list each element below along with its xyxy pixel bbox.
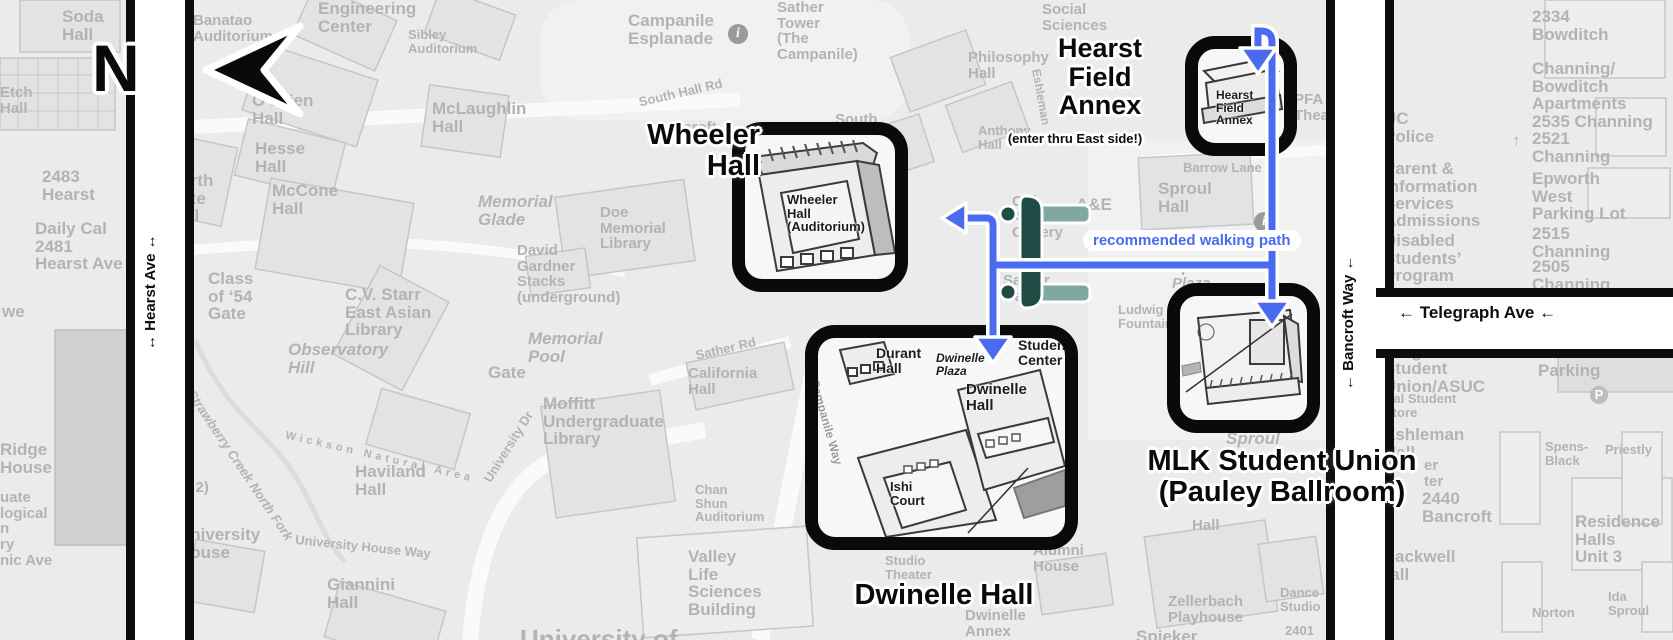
label-channing-bowditch: Channing/ Bowditch Apartments 2535 Chann…	[1532, 60, 1653, 131]
label-observatory-hill: Observatory Hill	[288, 341, 388, 376]
label-campanile-esplanade: Campanile Esplanade	[628, 12, 714, 47]
student-center-label: Student Center	[1018, 338, 1070, 367]
label-arrow-up: ↑	[1512, 132, 1521, 150]
info-icon: i	[1254, 212, 1274, 232]
north-letter: N	[92, 30, 140, 106]
hearst-annex-building-label: Hearst Field Annex	[1216, 89, 1253, 127]
label-daily-cal: Daily Cal 2481 Hearst Ave	[35, 220, 123, 273]
label-sibley: Sibley Auditorium	[408, 28, 477, 55]
label-etch-hall: Etch Hall	[0, 85, 33, 116]
label-chan-shun: Chan Shun Auditorium	[695, 483, 764, 524]
mlk-drawing	[1180, 296, 1307, 420]
label-2401: 2401	[1285, 624, 1314, 638]
label-2521-channing: 2521 Channing	[1532, 130, 1610, 165]
label-haviland: Haviland Hall	[355, 463, 426, 498]
walking-path-label: recommended walking path	[1083, 230, 1301, 251]
hearst-annex-subtitle: (enter thru East side!)	[965, 132, 1185, 146]
label-2334-bowditch: 2334 Bowditch	[1532, 8, 1609, 43]
label-norton: Norton	[1532, 606, 1575, 620]
label-ludwig-fountain: Ludwig Fountain	[1118, 303, 1173, 330]
label-dwinelle-annex: Dwinelle Annex	[965, 608, 1026, 639]
dwinelle-hall-inner-label: Dwinelle Hall	[966, 382, 1027, 414]
label-gate: Gate	[488, 364, 526, 382]
label-gardner-stacks: David Gardner Stacks (underground)	[517, 243, 620, 305]
hearst-annex-callout: Hearst Field Annex	[1185, 36, 1297, 156]
label-2515-channing: 2515 Channing	[1532, 225, 1610, 260]
label-cv-starr: C.V. Starr East Asian Library	[345, 286, 431, 339]
label-grad-partial: uate logical n ry	[0, 490, 48, 552]
label-admissions: Admissions	[1384, 212, 1480, 230]
label-priestly: Priestly	[1605, 443, 1652, 457]
label-we-partial: we	[2, 303, 25, 321]
label-ridge-house: Ridge House	[0, 441, 52, 476]
hearst-ave-label: ↔ Hearst Ave ↔	[142, 234, 159, 350]
label-mclaughlin: McLaughlin Hall	[432, 100, 526, 135]
label-residence-halls: Residence Halls Unit 3	[1575, 513, 1660, 566]
wheeler-hall-title: Wheeler Hall	[600, 120, 760, 181]
label-doe-library: Doe Memorial Library	[600, 205, 666, 252]
label-giannini: Giannini Hall	[327, 576, 395, 611]
bancroft-way-label: ← Bancroft Way ←	[1340, 256, 1357, 390]
label-memorial-pool: Memorial Pool	[528, 330, 603, 365]
label-hesse: Hesse Hall	[255, 140, 305, 175]
label-social-sciences: Social Sciences	[1042, 2, 1107, 33]
dwinelle-plaza-label: Dwinelle Plaza	[936, 352, 985, 377]
durant-hall-label: Durant Hall	[876, 346, 921, 375]
label-barrow-lane: Barrow Lane	[1183, 161, 1262, 175]
label-parent-info: Parent & Information Services	[1384, 160, 1478, 213]
label-ida-sproul: Ida Sproul	[1608, 590, 1649, 617]
label-dsp: Disabled Students’ Program	[1384, 232, 1461, 285]
info-icon: i	[728, 24, 748, 44]
label-sather-gate: Sather Gate	[1003, 273, 1050, 304]
telegraph-ave-road	[1376, 288, 1673, 358]
dwinelle-title: Dwinelle Hall	[814, 580, 1074, 611]
campus-map: Soda Hall Etch Hall Banatao Auditorium E…	[0, 0, 1673, 640]
label-zellerbach-playhouse: Zellerbach Playhouse	[1168, 594, 1243, 625]
label-2483-hearst: 2483 Hearst	[42, 168, 95, 203]
label-sather-tower: Sather Tower (The Campanile)	[777, 0, 858, 62]
label-dance-studio: Dance Studio	[1280, 586, 1320, 613]
label-class-of-54: Class of ‘54 Gate	[208, 270, 253, 323]
telegraph-ave-label: ← Telegraph Ave ←	[1398, 303, 1556, 323]
label-university-of: University of	[520, 626, 678, 640]
label-engineering-center: Engineering Center	[318, 0, 416, 35]
hearst-annex-title: Hearst Field Annex	[1025, 34, 1175, 120]
label-cal-student-store: Cal Student Store	[1384, 392, 1456, 419]
label-old-art-gallery: Old Art Gallery	[1012, 194, 1063, 241]
label-spens-black: Spens- Black	[1545, 440, 1588, 467]
mlk-callout	[1167, 283, 1320, 433]
label-moffitt: Moffitt Undergraduate Library	[543, 395, 664, 448]
label-studio-theater: Studio Theater	[885, 554, 932, 581]
label-epworth: Epworth West Parking Lot	[1532, 170, 1626, 223]
parking-icon: P	[1590, 386, 1608, 404]
label-scenic-ave: nic Ave	[0, 553, 52, 569]
dwinelle-hall-callout: Durant Hall Dwinelle Plaza Dwinelle Hall…	[805, 325, 1078, 550]
label-ae: A&E	[1076, 196, 1112, 214]
label-mccone: McCone Hall	[272, 182, 338, 217]
mlk-title: MLK Student Union (Pauley Ballroom)	[1092, 446, 1472, 507]
label-vlsb: Valley Life Sciences Building	[688, 548, 762, 619]
label-memorial-glade: Memorial Glade	[478, 193, 553, 228]
wheeler-building-label: Wheeler Hall (Auditorium)	[787, 193, 865, 234]
label-california-hall: California Hall	[688, 366, 757, 397]
ishi-court-label: Ishi Court	[890, 480, 925, 507]
label-zellerbach-hall-partial: Hall	[1192, 518, 1220, 534]
label-spieker: Spieker	[1136, 628, 1197, 640]
label-obrien: O’Brien Hall	[252, 92, 313, 127]
label-sproul-hall: Sproul Hall	[1158, 180, 1212, 215]
label-banatao: Banatao Auditorium	[193, 13, 273, 44]
